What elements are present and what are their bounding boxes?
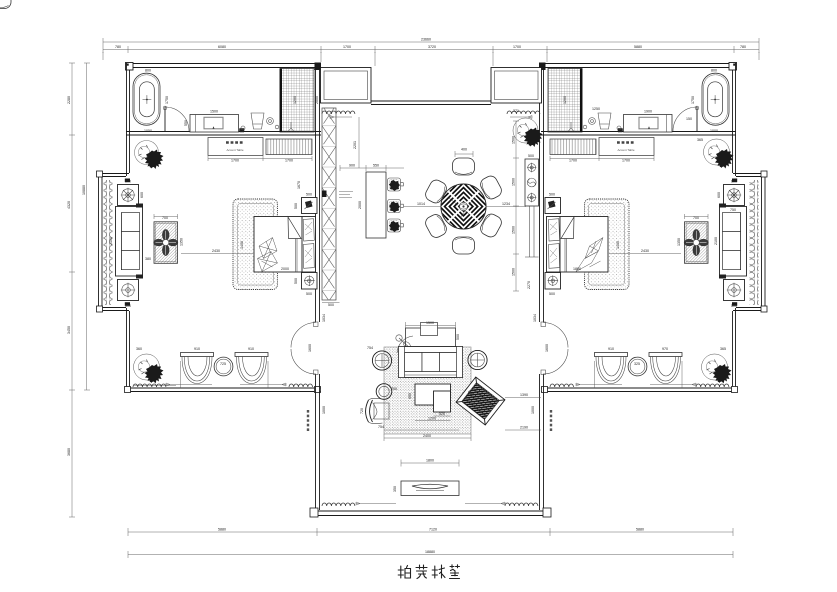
svg-text:650: 650 — [408, 393, 412, 399]
svg-text:1200: 1200 — [563, 96, 567, 104]
svg-text:910: 910 — [608, 347, 614, 351]
svg-text:780: 780 — [740, 45, 746, 49]
svg-text:2270: 2270 — [527, 281, 531, 289]
svg-text:1800: 1800 — [426, 459, 434, 463]
svg-text:1700: 1700 — [231, 159, 239, 163]
svg-text:800: 800 — [145, 68, 151, 72]
svg-text:2430: 2430 — [641, 249, 649, 253]
svg-text:520: 520 — [439, 412, 445, 416]
svg-text:350: 350 — [393, 486, 397, 492]
svg-text:1000: 1000 — [710, 129, 718, 133]
svg-text:3680: 3680 — [67, 448, 71, 456]
svg-text:325: 325 — [634, 362, 640, 366]
svg-text:700: 700 — [391, 387, 397, 391]
svg-text:380: 380 — [145, 257, 151, 261]
svg-text:1700: 1700 — [569, 159, 577, 163]
svg-text:550: 550 — [184, 120, 188, 126]
svg-text:750: 750 — [730, 208, 736, 212]
svg-text:754: 754 — [367, 346, 373, 350]
svg-text:2100: 2100 — [714, 237, 718, 245]
svg-text:360: 360 — [136, 347, 142, 351]
svg-text:1034: 1034 — [533, 314, 537, 322]
svg-text:23660: 23660 — [421, 38, 431, 42]
svg-text:1500: 1500 — [512, 268, 516, 276]
svg-text:1000: 1000 — [322, 406, 326, 414]
svg-text:2280: 2280 — [67, 96, 71, 104]
svg-text:910: 910 — [194, 347, 200, 351]
svg-text:970: 970 — [662, 347, 668, 351]
svg-text:600: 600 — [125, 180, 131, 184]
svg-text:1700: 1700 — [285, 159, 293, 163]
svg-text:500: 500 — [528, 154, 534, 158]
svg-text:1400: 1400 — [616, 241, 620, 249]
svg-text:1600: 1600 — [545, 344, 549, 352]
svg-text:1500: 1500 — [512, 136, 516, 144]
svg-text:3720: 3720 — [428, 45, 436, 49]
svg-text:400: 400 — [461, 148, 467, 152]
svg-text:5880: 5880 — [636, 528, 644, 532]
svg-text:7120: 7120 — [429, 528, 437, 532]
svg-text:10880: 10880 — [82, 185, 86, 195]
svg-text:720: 720 — [360, 408, 364, 414]
svg-text:2430: 2430 — [212, 249, 220, 253]
svg-text:1500: 1500 — [512, 178, 516, 186]
svg-text:365: 365 — [697, 138, 703, 142]
svg-text:2000: 2000 — [315, 96, 319, 104]
svg-text:1670: 1670 — [297, 181, 301, 189]
svg-text:1000: 1000 — [531, 406, 535, 414]
svg-text:1500: 1500 — [426, 321, 434, 325]
svg-text:600: 600 — [717, 192, 721, 198]
svg-text:1700: 1700 — [622, 159, 630, 163]
svg-text:1250: 1250 — [592, 107, 600, 111]
svg-text:600: 600 — [731, 180, 737, 184]
svg-text:1400: 1400 — [240, 241, 244, 249]
svg-text:Accent Table: Accent Table — [226, 148, 243, 152]
svg-text:2190: 2190 — [520, 426, 528, 430]
svg-text:1200: 1200 — [293, 96, 297, 104]
svg-text:3450: 3450 — [67, 326, 71, 334]
svg-text:1600: 1600 — [308, 344, 312, 352]
svg-text:910: 910 — [248, 347, 254, 351]
svg-text:2201: 2201 — [353, 141, 357, 149]
svg-text:Accent Table: Accent Table — [617, 148, 634, 152]
svg-text:1014: 1014 — [417, 202, 425, 206]
svg-text:900: 900 — [349, 164, 355, 168]
svg-text:800: 800 — [711, 68, 717, 72]
svg-text:600: 600 — [125, 304, 131, 308]
svg-text:500: 500 — [294, 278, 298, 284]
svg-text:500: 500 — [549, 292, 555, 296]
svg-text:725: 725 — [220, 362, 226, 366]
svg-text:1050: 1050 — [144, 129, 152, 133]
svg-text:500: 500 — [306, 292, 312, 296]
svg-text:754: 754 — [378, 425, 384, 429]
svg-text:1350: 1350 — [677, 238, 681, 246]
svg-text:500: 500 — [549, 193, 555, 197]
svg-text:1700: 1700 — [343, 45, 351, 49]
svg-text:4320: 4320 — [67, 201, 71, 209]
svg-text:1034: 1034 — [322, 314, 326, 322]
svg-text:1900: 1900 — [644, 110, 652, 114]
svg-text:1800: 1800 — [573, 267, 581, 271]
svg-text:1500: 1500 — [512, 226, 516, 234]
svg-text:550: 550 — [373, 164, 379, 168]
svg-text:1234: 1234 — [502, 202, 510, 206]
svg-text:2000: 2000 — [358, 201, 362, 209]
svg-text:500: 500 — [306, 193, 312, 197]
svg-text:1500: 1500 — [210, 110, 218, 114]
svg-text:365: 365 — [720, 347, 726, 351]
svg-text:500: 500 — [328, 303, 334, 307]
svg-text:5880: 5880 — [634, 45, 642, 49]
svg-text:1750: 1750 — [165, 96, 169, 104]
svg-text:1700: 1700 — [513, 45, 521, 49]
svg-text:150: 150 — [686, 117, 692, 121]
svg-text:500: 500 — [731, 304, 737, 308]
svg-text:500: 500 — [456, 334, 460, 340]
svg-text:6080: 6080 — [218, 45, 226, 49]
svg-text:2000: 2000 — [281, 267, 289, 271]
svg-text:1350: 1350 — [180, 238, 184, 246]
svg-text:1390: 1390 — [520, 393, 528, 397]
svg-text:2400: 2400 — [423, 434, 431, 438]
svg-text:18880: 18880 — [425, 550, 435, 554]
svg-text:1750: 1750 — [691, 96, 695, 104]
svg-text:2100: 2100 — [109, 237, 113, 245]
svg-text:500: 500 — [294, 203, 298, 209]
svg-text:1200: 1200 — [428, 417, 436, 421]
svg-text:600: 600 — [140, 192, 144, 198]
svg-text:371: 371 — [513, 109, 519, 113]
svg-text:780: 780 — [115, 45, 121, 49]
svg-text:5880: 5880 — [218, 528, 226, 532]
